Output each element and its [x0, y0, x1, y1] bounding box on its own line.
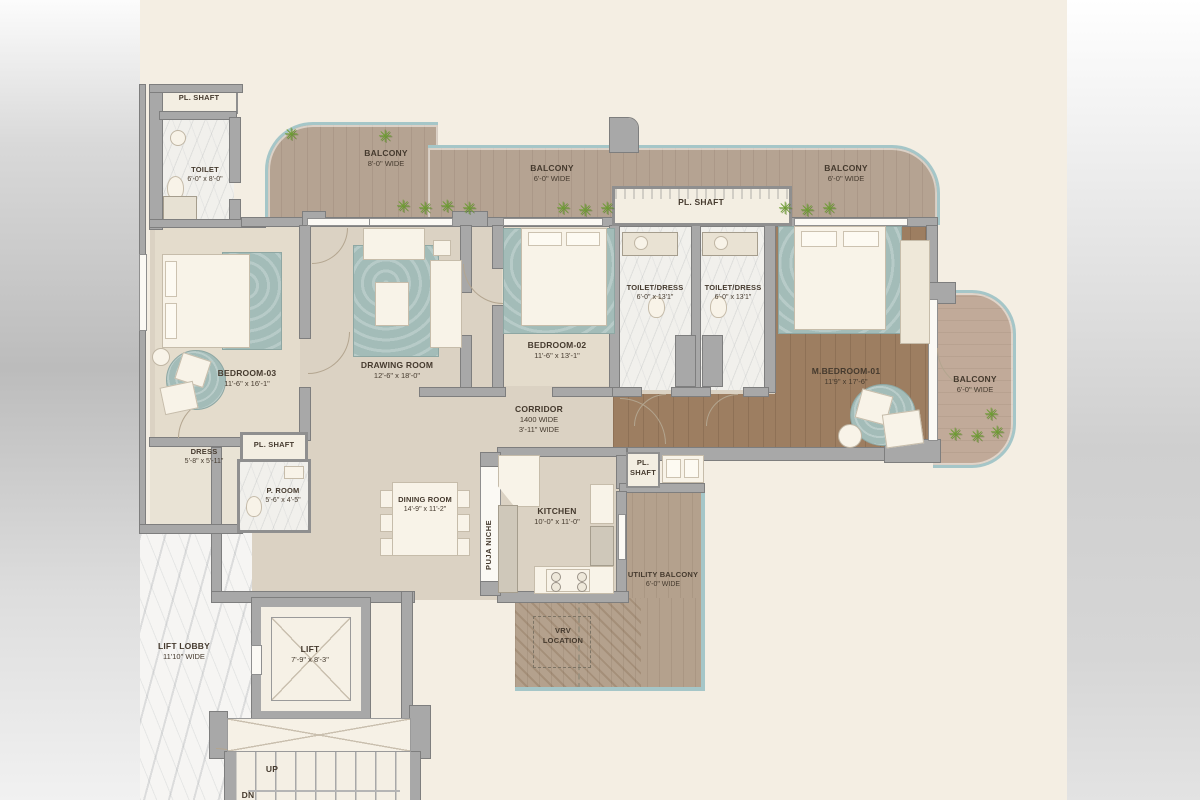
plant-icon: ✳ [418, 200, 432, 217]
wall-segment [410, 752, 420, 800]
room-dims: 6'-0" x 8'-0" [187, 175, 222, 184]
plant-icon: ✳ [440, 198, 454, 215]
wall-segment [610, 118, 638, 152]
dining-table [392, 482, 458, 556]
room-label-lift-lobby: LIFT LOBBY 11'10" WIDE [158, 641, 210, 662]
room-dims: 6'-0" WIDE [953, 385, 996, 395]
side-table [152, 348, 170, 366]
direction-text: DN [242, 790, 255, 800]
wall-segment [672, 388, 710, 396]
room-dims: 14'-9" x 11'-2" [398, 505, 452, 514]
room-name: BALCONY [824, 163, 867, 174]
room-name: PL. [630, 458, 656, 468]
shower-area [163, 196, 197, 222]
plant-icon: ✳ [990, 424, 1004, 441]
room-name: BALCONY [953, 374, 996, 385]
room-label-toilet-topleft: TOILET 6'-0" x 8'-0" [187, 165, 222, 184]
side-table [838, 424, 862, 448]
room-dims: 5'-6" x 4'-5" [265, 496, 300, 505]
plant-icon: ✳ [284, 126, 298, 143]
wc-cubicle [703, 336, 722, 386]
washbasin [634, 236, 648, 250]
room-label-vrv: VRV LOCATION [543, 626, 583, 646]
room-name: CORRIDOR [515, 404, 563, 415]
stairs-dn-label: DN [242, 790, 255, 800]
right-gradient-margin [1067, 0, 1200, 800]
stove-burner [577, 582, 587, 592]
wall-segment [461, 336, 471, 390]
utility-sink-bowl [684, 459, 699, 478]
window [619, 515, 625, 559]
wardrobe [900, 240, 930, 344]
room-name: M.BEDROOM-01 [812, 366, 881, 377]
staircase [235, 752, 410, 800]
plant-icon: ✳ [556, 200, 570, 217]
room-name: DINING ROOM [398, 495, 452, 505]
wall-segment [553, 388, 613, 396]
pillow [165, 261, 177, 297]
room-label-dress: DRESS 5'-8" x 5'-11" [185, 447, 224, 466]
stove-burner [551, 582, 561, 592]
pillow [165, 303, 177, 339]
stove-burner [577, 572, 587, 582]
stair-landing [227, 718, 411, 752]
room-label-dining-room: DINING ROOM 14'-9" x 11'-2" [398, 495, 452, 514]
plant-icon: ✳ [600, 200, 614, 217]
room-dims: 3'-11" WIDE [515, 425, 563, 435]
left-gradient-margin [0, 0, 140, 800]
plant-icon: ✳ [396, 198, 410, 215]
balcony-slider-window [929, 300, 937, 440]
vanity-counter [702, 232, 758, 256]
room-dims: 5'-8" x 5'-11" [185, 457, 224, 466]
room-dims: 8'-0" WIDE [364, 159, 407, 169]
wall-segment [150, 85, 162, 229]
window [370, 219, 452, 225]
plant-icon: ✳ [970, 428, 984, 445]
room-dims: 10'-0" x 11'-0" [534, 517, 580, 527]
room-name: BALCONY [530, 163, 573, 174]
wall-segment [300, 226, 310, 338]
utility-sink-bowl [666, 459, 681, 478]
room-label-p-room: P. ROOM 5'-6" x 4'-5" [265, 486, 300, 505]
wall-segment [230, 118, 240, 182]
room-dims: 11'9" x 17'-6" [812, 377, 881, 387]
dining-chair [457, 514, 470, 532]
utility-glass-right [701, 490, 705, 689]
room-label-pl-shaft-topleft: PL. SHAFT [179, 93, 220, 103]
plant-icon: ✳ [984, 406, 998, 423]
armchair [882, 410, 924, 449]
room-dims: 11'-6" x 13'-1" [528, 351, 587, 361]
room-label-balcony-mid: BALCONY 6'-0" WIDE [530, 163, 573, 184]
room-label-toilet-dress-right: TOILET/DRESS 6'-0" x 13'1" [705, 283, 762, 302]
room-name: BEDROOM-02 [528, 340, 587, 351]
room-label-utility-balcony: UTILITY BALCONY 6'-0" WIDE [628, 570, 698, 589]
sofa [363, 228, 425, 260]
washbasin [714, 236, 728, 250]
stair-rail [248, 790, 400, 792]
dining-chair [380, 514, 393, 532]
pillow [843, 231, 879, 247]
room-label-balcony-left: BALCONY 8'-0" WIDE [364, 148, 407, 169]
pillow [566, 232, 600, 246]
wall-segment [212, 448, 221, 594]
room-name: TOILET/DRESS [627, 283, 684, 293]
dining-chair [380, 538, 393, 556]
room-label-corridor: CORRIDOR 1400 WIDE 3'-11" WIDE [515, 404, 563, 435]
plant-icon: ✳ [948, 426, 962, 443]
wall-segment [420, 388, 505, 396]
room-label-mbedroom01: M.BEDROOM-01 11'9" x 17'-6" [812, 366, 881, 387]
toilet-wc [246, 496, 262, 517]
room-name: DRAWING ROOM [361, 360, 433, 371]
wall-segment [498, 448, 626, 456]
wall-segment [493, 306, 503, 390]
dining-chair [380, 490, 393, 508]
utility-glass-bottom [515, 687, 705, 691]
plant-icon: ✳ [822, 200, 836, 217]
pillow [801, 231, 837, 247]
wall-segment [402, 592, 412, 720]
room-dims: 1400 WIDE [515, 415, 563, 425]
wall-segment [140, 525, 242, 533]
wall-segment [493, 226, 503, 268]
wall-segment [160, 112, 236, 119]
plant-icon: ✳ [378, 128, 392, 145]
room-name: LIFT LOBBY [158, 641, 210, 652]
room-name: VRV [543, 626, 583, 636]
room-dims: 6'-0" WIDE [824, 174, 867, 184]
room-dims: 6'-0" x 13'1" [705, 293, 762, 302]
kitchen-counter [498, 505, 518, 593]
pillow [528, 232, 562, 246]
plant-icon: ✳ [462, 200, 476, 217]
direction-text: UP [266, 764, 278, 775]
side-table [433, 240, 451, 256]
wall-segment [150, 438, 242, 446]
room-name: P. ROOM [265, 486, 300, 496]
room-label-toilet-dress-left: TOILET/DRESS 6'-0" x 13'1" [627, 283, 684, 302]
room-label-bedroom03: BEDROOM-03 11'-6" x 16'-1" [218, 368, 277, 389]
coffee-table [375, 282, 409, 326]
room-label-pl-shaft-kitchen: PL. SHAFT [630, 458, 656, 478]
room-name: SHAFT [630, 468, 656, 478]
wall-segment [765, 226, 775, 392]
room-name: PL. SHAFT [179, 93, 220, 103]
washbasin [170, 130, 186, 146]
room-label-balcony-topright: BALCONY 6'-0" WIDE [824, 163, 867, 184]
plant-icon: ✳ [800, 202, 814, 219]
stairs-up-label: UP [266, 764, 278, 775]
room-name: LOCATION [543, 636, 583, 646]
plant-icon: ✳ [578, 202, 592, 219]
room-label-kitchen: KITCHEN 10'-0" x 11'-0" [534, 506, 580, 527]
room-label-pl-shaft-mid: PL. SHAFT [254, 440, 295, 450]
window [308, 219, 378, 225]
room-dims: 7'-9" x 8'-3" [291, 655, 329, 665]
sofa [430, 260, 462, 348]
room-dims: 12'-6" x 18'-0" [361, 371, 433, 381]
window [140, 255, 146, 330]
room-label-bedroom02: BEDROOM-02 11'-6" x 13'-1" [528, 340, 587, 361]
room-name: TOILET [187, 165, 222, 175]
kitchen-counter [590, 526, 614, 566]
dining-chair [457, 490, 470, 508]
room-dims: 11'-6" x 16'-1" [218, 379, 277, 389]
room-name: DRESS [185, 447, 224, 457]
lift-door [252, 646, 261, 674]
room-name: KITCHEN [534, 506, 580, 517]
dining-chair [457, 538, 470, 556]
room-dims: 11'10" WIDE [158, 652, 210, 662]
wc-cubicle [676, 336, 695, 386]
vanity-counter [622, 232, 678, 256]
wall-segment [613, 388, 641, 396]
wall-segment [481, 453, 500, 466]
stove-burner [551, 572, 561, 582]
room-label-puja-niche: PUJA NICHE [484, 500, 493, 570]
floor-plan: ✳ ✳ ✳ ✳ ✳ ✳ ✳ ✳ ✳ ✳ ✳ ✳ ✳ ✳ ✳ ✳ PL. SHAF… [0, 0, 1200, 800]
room-name: UTILITY BALCONY [628, 570, 698, 580]
wall-segment [150, 85, 242, 92]
wall-segment [744, 388, 768, 396]
stove [546, 569, 590, 592]
room-name: LIFT [291, 644, 329, 655]
room-label-drawing-room: DRAWING ROOM 12'-6" x 18'-0" [361, 360, 433, 381]
room-label-pl-shaft-top: PL. SHAFT [678, 197, 724, 208]
room-dims: 6'-0" WIDE [530, 174, 573, 184]
room-dims: 6'-0" x 13'1" [627, 293, 684, 302]
room-name: PL. SHAFT [678, 197, 724, 208]
washbasin [284, 466, 304, 479]
room-dims: 6'-0" WIDE [628, 580, 698, 589]
room-name: TOILET/DRESS [705, 283, 762, 293]
fridge [590, 484, 614, 524]
room-name: PL. SHAFT [254, 440, 295, 450]
plant-icon: ✳ [778, 200, 792, 217]
room-name: BEDROOM-03 [218, 368, 277, 379]
room-label-balcony-right: BALCONY 6'-0" WIDE [953, 374, 996, 395]
room-label-lift: LIFT 7'-9" x 8'-3" [291, 644, 329, 665]
wall-segment [410, 706, 430, 758]
room-name: BALCONY [364, 148, 407, 159]
